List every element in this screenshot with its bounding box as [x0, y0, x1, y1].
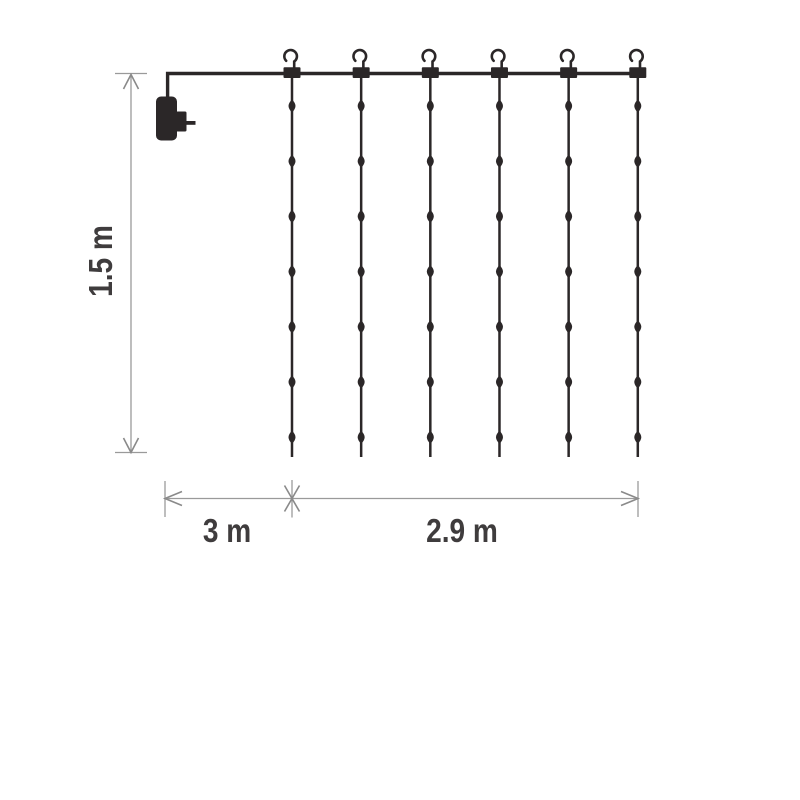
led-light	[634, 99, 641, 112]
hook-clamp	[422, 67, 439, 78]
hook-icon	[561, 50, 574, 68]
led-light	[289, 375, 296, 388]
light-curtain-dimension-diagram: 1.5 m 3 m 2.9 m	[0, 0, 800, 800]
curtain-strand	[560, 50, 577, 457]
led-light	[634, 431, 641, 444]
plug-socket-block	[176, 112, 187, 132]
led-light	[358, 375, 365, 388]
led-light	[289, 320, 296, 333]
led-light	[634, 265, 641, 278]
width-dimension-label: 2.9 m	[426, 512, 498, 550]
led-light	[427, 265, 434, 278]
led-light	[358, 265, 365, 278]
led-light	[565, 375, 572, 388]
hook-icon	[492, 50, 505, 68]
led-light	[289, 431, 296, 444]
hook-clamp	[353, 67, 370, 78]
plug-body	[156, 97, 177, 141]
led-light	[496, 320, 503, 333]
led-light	[427, 431, 434, 444]
hook-icon	[284, 50, 297, 68]
curtain-strands	[284, 50, 647, 457]
curtain-strand	[491, 50, 508, 457]
plug-pin	[186, 121, 196, 125]
led-light	[496, 431, 503, 444]
led-light	[634, 375, 641, 388]
led-light	[289, 265, 296, 278]
led-light	[634, 320, 641, 333]
curtain-strand	[629, 50, 646, 457]
led-light	[358, 155, 365, 168]
led-light	[427, 99, 434, 112]
led-light	[496, 155, 503, 168]
led-light	[496, 99, 503, 112]
led-light	[358, 99, 365, 112]
led-light	[289, 210, 296, 223]
led-light	[496, 375, 503, 388]
led-light	[358, 431, 365, 444]
power-plug-icon	[156, 74, 646, 141]
hook-clamp	[284, 67, 301, 78]
curtain-strand	[284, 50, 301, 457]
height-dimension-label: 1.5 m	[82, 225, 120, 297]
curtain-strand	[353, 50, 370, 457]
led-light	[358, 320, 365, 333]
led-light	[289, 99, 296, 112]
led-light	[427, 320, 434, 333]
led-light	[634, 155, 641, 168]
led-light	[427, 210, 434, 223]
led-light	[565, 431, 572, 444]
diagram-drawing	[0, 0, 800, 800]
led-light	[358, 210, 365, 223]
hook-icon	[423, 50, 436, 68]
led-light	[634, 210, 641, 223]
curtain-strand	[422, 50, 439, 457]
led-light	[427, 375, 434, 388]
hook-clamp	[629, 67, 646, 78]
led-light	[496, 210, 503, 223]
hook-clamp	[491, 67, 508, 78]
led-light	[565, 320, 572, 333]
hook-icon	[353, 50, 366, 68]
led-light	[496, 265, 503, 278]
led-light	[289, 155, 296, 168]
hook-clamp	[560, 67, 577, 78]
led-light	[565, 210, 572, 223]
lead-dimension-label: 3 m	[203, 512, 251, 550]
led-light	[565, 155, 572, 168]
hook-icon	[630, 50, 643, 68]
led-light	[427, 155, 434, 168]
led-light	[565, 99, 572, 112]
led-light	[565, 265, 572, 278]
